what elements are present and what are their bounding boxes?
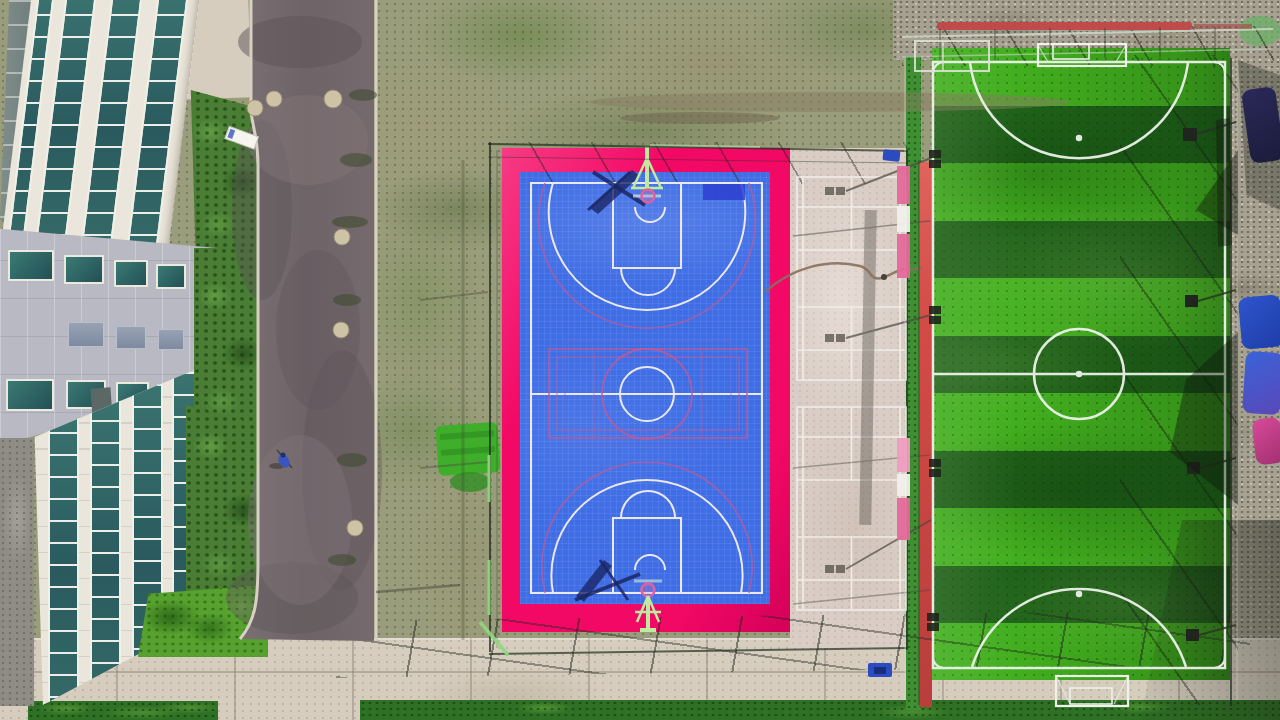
aerial-photo-stage [0,0,1280,720]
badminton-court-1 [797,177,906,380]
tent-shadows [1170,118,1238,505]
basketball-hoop-top [588,146,663,214]
basketball-court-markings [531,183,762,593]
road [225,0,382,641]
badminton-court-2 [797,407,906,610]
basketball-overlay-markings [539,183,756,593]
basketball-hoop-bottom [575,560,662,630]
badminton-court-lines [797,177,906,610]
side-boards [897,166,910,540]
line-art-overlay [0,0,1280,720]
soccer-goal-bottom [1056,676,1128,706]
soccer-pitch-markings [933,62,1225,668]
terrain-details [376,92,1070,640]
